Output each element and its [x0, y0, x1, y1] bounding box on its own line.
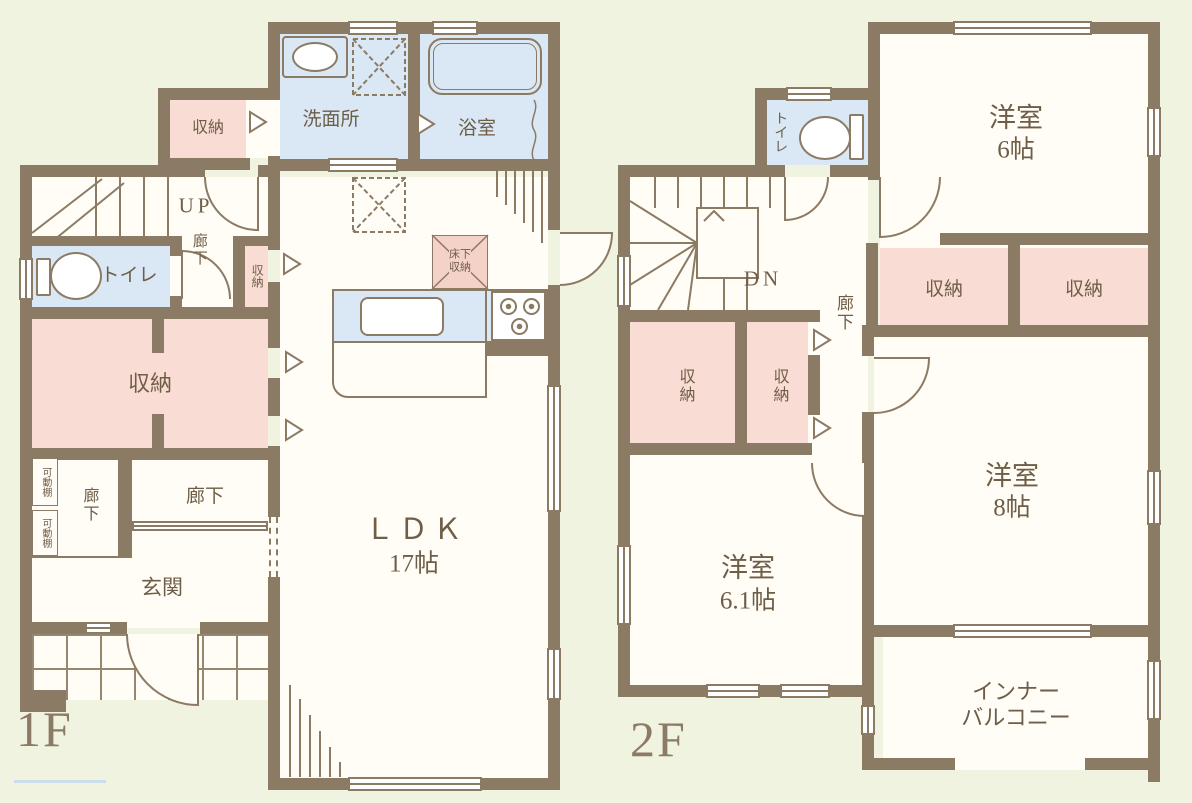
wall [1148, 525, 1160, 660]
door-entrance [127, 634, 198, 705]
floor-plan: 収納 洗面所 浴室 UP 廊下 トイレ 収納 収納 可動棚 可動棚 廊下 廊下 … [0, 0, 1192, 803]
hatch-line [541, 171, 543, 243]
wall [398, 22, 432, 34]
door-room61 [812, 463, 865, 516]
wall [830, 165, 868, 177]
wall [170, 296, 182, 307]
wall [398, 159, 560, 171]
stove-burner [511, 318, 528, 335]
room-label-bathroom: 浴室 [458, 118, 496, 140]
toilet-tank-1f [36, 258, 51, 296]
ldk-area [280, 177, 548, 778]
room-label-hall-side: 廊下 [79, 487, 98, 523]
room-label-room61: 洋室 [721, 553, 775, 585]
hatch-line [299, 699, 301, 777]
balcony-label-1: インナー [972, 679, 1060, 705]
window [786, 87, 832, 101]
wall [408, 34, 420, 171]
room-label-toilet-1f: トイレ [100, 265, 157, 287]
wall [268, 577, 280, 778]
wall [480, 778, 560, 790]
wall [868, 22, 955, 34]
wall [158, 88, 280, 100]
wall [868, 88, 880, 180]
wall [118, 458, 132, 558]
washing-machine-pan [352, 38, 406, 96]
wall [618, 307, 630, 545]
bath-folding-door [416, 112, 436, 136]
room-label-washroom: 洗面所 [302, 109, 359, 131]
room-label-storage-c: 収納 [675, 368, 694, 404]
wall [940, 233, 1160, 245]
room-label-storage-top: 収納 [192, 120, 224, 139]
wall [767, 165, 785, 177]
opening-marker [812, 328, 832, 352]
room-label-storage-d: 収納 [769, 368, 788, 404]
window [1147, 470, 1161, 525]
door-room6 [880, 177, 940, 237]
window [547, 385, 561, 512]
room-label-ldk-size: 17帖 [389, 549, 439, 579]
hatch-line [496, 171, 498, 197]
refrigerator-space [352, 177, 406, 233]
toilet-bowl-1f [50, 252, 102, 300]
room-label-toilet-2f: トイレ [771, 111, 788, 153]
kitchen-half-wall [487, 343, 560, 356]
wall [1085, 758, 1160, 770]
room-label-hall-2f: 廊下 [833, 294, 853, 332]
room-label-storage-main: 収納 [128, 371, 172, 397]
wall [618, 310, 820, 322]
wall [618, 443, 812, 455]
window [953, 21, 1092, 35]
room-label-storage-strip: 収納 [250, 264, 264, 288]
room-label-room8: 洋室 [985, 461, 1039, 493]
wall [618, 685, 708, 697]
wall [548, 700, 560, 790]
stove-burner [523, 298, 540, 315]
window [1147, 660, 1161, 720]
hatch-line [505, 171, 507, 205]
bathtub-inner [433, 43, 537, 90]
wall [830, 88, 868, 100]
hall-entrance-area [32, 458, 268, 628]
door-kitchen-back [560, 233, 612, 285]
window [348, 21, 398, 35]
underfloor-label-1: 床下 [449, 249, 471, 262]
hatch-line [319, 731, 321, 777]
opening-marker [284, 350, 304, 374]
washbasin-bowl [292, 42, 338, 72]
room-label-storage-a: 収納 [925, 279, 963, 301]
window [432, 21, 478, 35]
room-label-hall: 廊下 [186, 486, 224, 508]
stairs-up-label: UP [179, 194, 214, 219]
room-label-entrance: 玄関 [141, 576, 183, 601]
opening-marker [282, 252, 302, 276]
wall [268, 165, 280, 250]
window [780, 684, 830, 698]
floor-title-2f: 2F [630, 710, 687, 768]
wall [268, 282, 280, 348]
window [861, 705, 875, 735]
wall [20, 448, 280, 460]
wall [233, 236, 245, 307]
wall [1148, 22, 1160, 107]
entrance-step-line [32, 556, 118, 558]
wall [20, 307, 280, 319]
opening-marker [248, 110, 268, 134]
hatch-line [532, 171, 534, 232]
balcony-label-2: バルコニー [961, 705, 1071, 731]
window [1147, 107, 1161, 157]
stairs-down-label: DN [744, 267, 782, 292]
wall [548, 512, 560, 648]
wall [268, 446, 280, 517]
wall [618, 165, 630, 255]
wall [866, 243, 878, 337]
sliding-door-hall [132, 521, 268, 531]
wall [735, 322, 747, 443]
sliding-door-washroom [328, 158, 398, 172]
toilet-tank-2f [849, 114, 864, 160]
shelf-label-a: 可動棚 [39, 467, 51, 497]
wall [268, 378, 280, 416]
window [706, 684, 760, 698]
wall [1090, 625, 1160, 637]
hatch-line [329, 747, 331, 777]
hatch-line [514, 171, 516, 214]
window [547, 648, 561, 700]
window [348, 777, 482, 791]
hatch-line [309, 715, 311, 777]
wall [152, 414, 164, 448]
balcony-opening [955, 758, 1085, 770]
wall [862, 625, 955, 637]
opening-dashed-line [276, 517, 278, 577]
window [19, 258, 33, 300]
stairs-1f [32, 177, 175, 240]
wall [808, 355, 820, 415]
wall [1148, 157, 1160, 470]
window [85, 622, 112, 634]
window [617, 545, 631, 625]
wall [862, 758, 955, 770]
wall [862, 412, 874, 705]
opening-dashed-line [269, 517, 271, 577]
wall [258, 165, 268, 177]
shelf-label-b: 可動棚 [39, 518, 51, 548]
door-toilet-2f [785, 177, 828, 220]
stove-burner [500, 298, 517, 315]
wall [268, 778, 350, 790]
room-label-room6: 洋室 [989, 103, 1043, 135]
room-label-room8-size: 8帖 [993, 493, 1031, 523]
toilet-bowl-2f [799, 116, 851, 160]
wall [280, 159, 330, 171]
hatch-line [339, 762, 341, 777]
wall [758, 685, 782, 697]
wall [1008, 245, 1020, 337]
wall [20, 165, 205, 177]
floor-title-1f: 1F [16, 700, 73, 758]
opening-marker [812, 416, 832, 440]
wall [200, 622, 280, 634]
kitchen-sink [360, 297, 444, 336]
room-label-room6-size: 6帖 [997, 135, 1035, 165]
wall [20, 165, 32, 258]
window [617, 255, 631, 307]
hatch-line [523, 171, 525, 223]
underfloor-label-2: 収納 [449, 262, 471, 275]
room-label-storage-b: 収納 [1065, 279, 1103, 301]
wall [755, 88, 767, 165]
room-label-room61-size: 6.1帖 [720, 586, 776, 616]
wall [1148, 720, 1160, 782]
door-room8 [874, 358, 929, 413]
bath-wavy-line [528, 100, 540, 160]
floor-title-underline [14, 780, 106, 783]
wall [20, 300, 32, 712]
wall [862, 325, 1160, 337]
wall [548, 285, 560, 385]
wall [618, 165, 767, 177]
wall [268, 22, 348, 34]
room-label-hall-upper: 廊下 [189, 233, 207, 267]
wall [152, 319, 164, 353]
window [953, 624, 1092, 638]
wall [548, 22, 560, 230]
hatch-line [289, 685, 291, 777]
opening-marker [284, 418, 304, 442]
wall [862, 325, 874, 356]
room-label-ldk: ＬＤＫ [365, 513, 467, 547]
